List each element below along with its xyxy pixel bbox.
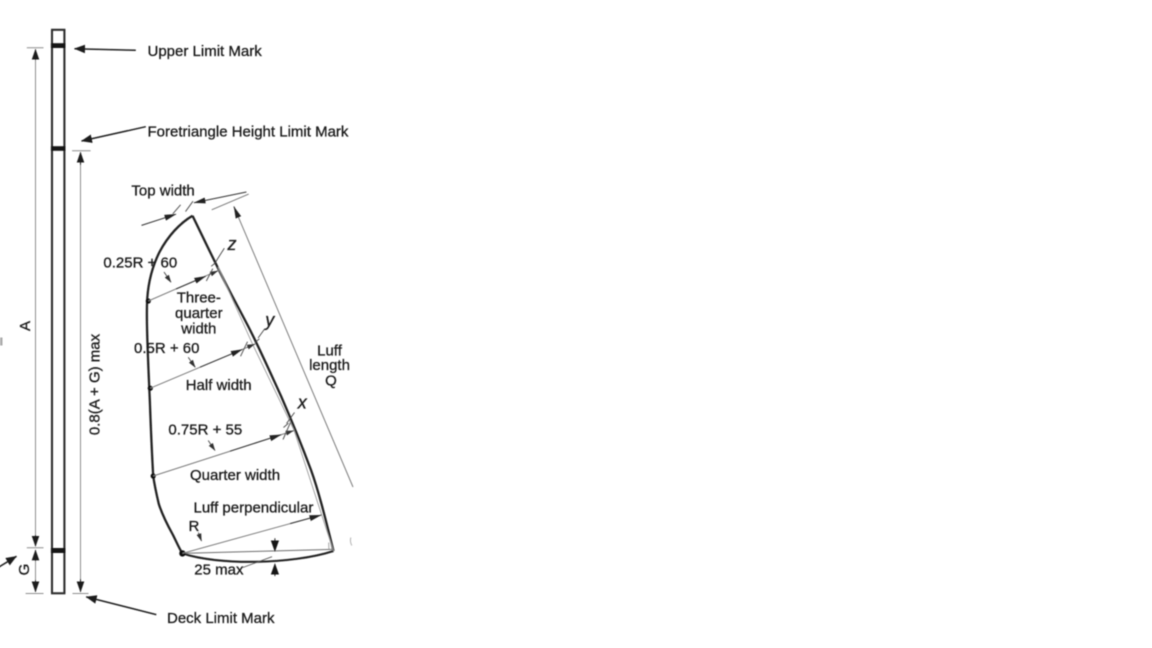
svg-text:Quarter width: Quarter width — [190, 467, 280, 484]
svg-text:R: R — [189, 518, 200, 535]
svg-text:Luff perpendicular: Luff perpendicular — [194, 499, 314, 516]
svg-text:length: length — [309, 357, 350, 374]
svg-text:Q: Q — [325, 373, 337, 390]
svg-text:Three-: Three- — [177, 290, 221, 307]
svg-text:G: G — [16, 564, 33, 576]
svg-text:width: width — [180, 321, 216, 338]
svg-text:Deck Limit Mark: Deck Limit Mark — [167, 610, 275, 627]
svg-text:0.25R + 60: 0.25R + 60 — [103, 254, 177, 271]
svg-text:Upper Limit Mark: Upper Limit Mark — [148, 43, 263, 60]
svg-text:A: A — [17, 321, 34, 331]
svg-text:Top width: Top width — [131, 183, 194, 200]
svg-text:x: x — [297, 392, 308, 412]
svg-text:Half width: Half width — [186, 377, 252, 394]
svg-text:0.75R + 55: 0.75R + 55 — [168, 422, 242, 439]
svg-text:25 max: 25 max — [194, 561, 244, 578]
svg-text:0.8(A + G) max: 0.8(A + G) max — [87, 333, 104, 435]
svg-text:y: y — [263, 310, 275, 330]
svg-text:Foretriangle Height Limit Mark: Foretriangle Height Limit Mark — [148, 123, 349, 140]
svg-text:0.5R + 60: 0.5R + 60 — [134, 340, 199, 357]
svg-text:z: z — [227, 234, 237, 254]
